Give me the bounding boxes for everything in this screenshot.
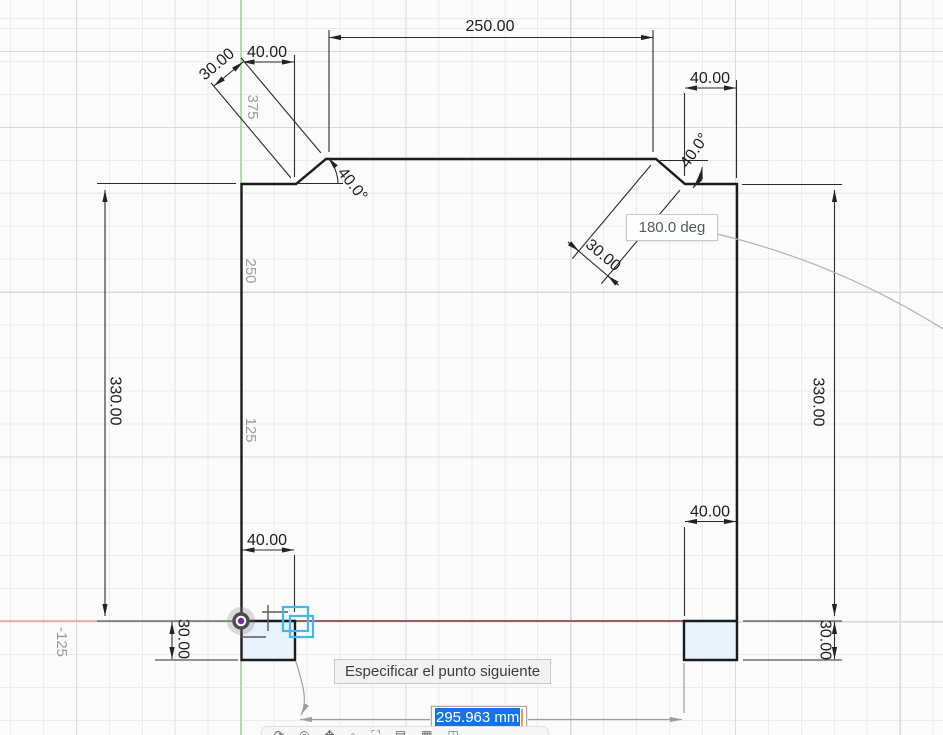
- preview-measurement: [296, 234, 943, 720]
- zoom-icon[interactable]: ⌕: [350, 729, 357, 735]
- grid-label-y375: 375: [244, 94, 261, 119]
- fit-icon[interactable]: ⛶: [371, 729, 379, 735]
- grid-label-xneg125: -125: [53, 627, 70, 657]
- profile-fill-right-tab[interactable]: [685, 622, 736, 659]
- dim-label-top-right-chamfer[interactable]: 30.00: [582, 236, 624, 275]
- dim-label-top-right-angle[interactable]: 40.0°: [677, 130, 712, 171]
- dim-top-width: 250.00: [329, 18, 653, 152]
- dim-right-height: 330.00: [742, 185, 842, 617]
- dim-bottom-left-tab-height: 30.00: [155, 619, 238, 660]
- dim-label-top-left-angle[interactable]: 40.0°: [334, 165, 371, 205]
- dim-label-right-height[interactable]: 330.00: [809, 378, 826, 427]
- look-at-icon[interactable]: ◎: [299, 729, 309, 735]
- dim-label-top-width[interactable]: 250.00: [466, 18, 515, 35]
- dim-label-bottom-left-tab-width[interactable]: 40.00: [247, 532, 287, 549]
- dim-label-bottom-right-tab-width[interactable]: 40.00: [690, 504, 730, 521]
- length-input-value: 295.963 mm: [435, 708, 520, 727]
- sketch-axes: [0, 0, 684, 735]
- origin-point[interactable]: [227, 607, 255, 635]
- angle-input[interactable]: 180.0 deg: [626, 214, 718, 241]
- dim-bottom-left-tab-width: 40.00: [243, 532, 295, 612]
- dim-label-top-left-chamfer[interactable]: 30.00: [196, 45, 238, 84]
- angle-preview-arc: [717, 234, 943, 329]
- dim-label-bottom-right-tab-height[interactable]: 30.00: [816, 620, 833, 660]
- navigation-toolbar[interactable]: ⟳ ◎ ✥ ⌕ ⛶ ▤ ▦ ◫: [261, 726, 549, 735]
- display-settings-icon[interactable]: ▤: [395, 729, 406, 735]
- dim-left-height: 330.00: [97, 184, 238, 622]
- grid-label-y125: 125: [242, 417, 259, 442]
- dim-label-bottom-left-tab-height[interactable]: 30.00: [174, 619, 191, 659]
- dim-label-left-height[interactable]: 330.00: [106, 377, 123, 426]
- dim-label-top-right-width[interactable]: 40.00: [690, 70, 730, 87]
- sketch-canvas[interactable]: 375 250 125 -125 250.00: [0, 0, 943, 735]
- dim-bottom-right-tab-width: 40.00: [685, 504, 737, 617]
- angle-input-value: 180.0 deg: [639, 219, 706, 236]
- orbit-icon[interactable]: ⟳: [274, 729, 284, 735]
- command-prompt-tooltip: Especificar el punto siguiente: [334, 659, 551, 684]
- pan-icon[interactable]: ✥: [325, 729, 335, 735]
- command-prompt-text: Especificar el punto siguiente: [345, 663, 540, 680]
- sketch-drawing: 375 250 125 -125 250.00: [0, 0, 943, 735]
- viewports-icon[interactable]: ◫: [447, 729, 458, 735]
- profile-fills[interactable]: [243, 622, 736, 659]
- grid-and-snaps-icon[interactable]: ▦: [421, 729, 432, 735]
- grid-axis-labels: 375 250 125 -125: [53, 94, 261, 657]
- grid-label-y250: 250: [242, 258, 259, 283]
- dim-label-top-left-offset[interactable]: 40.00: [247, 44, 287, 61]
- dim-bottom-right-tab-height: 30.00: [743, 620, 842, 660]
- text-caret: [521, 709, 523, 726]
- dim-top-left-angle: 40.0°: [296, 158, 370, 205]
- dim-top-right-angle: 40.0°: [660, 130, 713, 188]
- origin-dot: [238, 618, 244, 624]
